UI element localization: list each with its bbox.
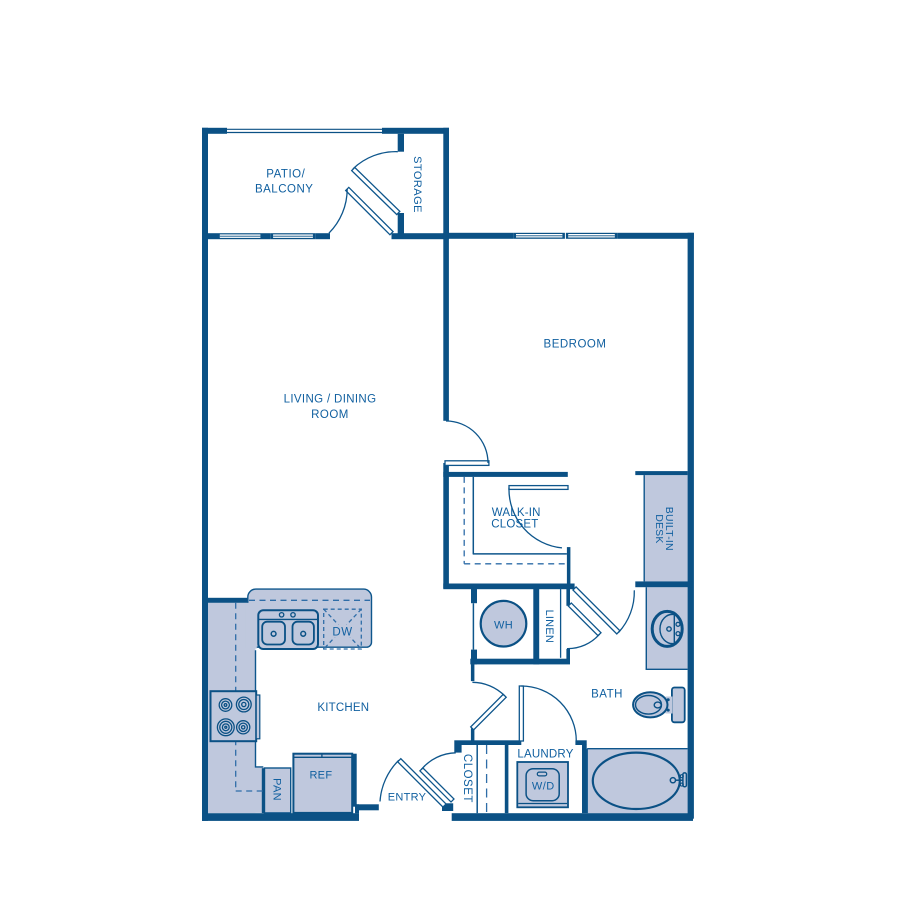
svg-text:STORAGE: STORAGE (411, 156, 423, 213)
svg-text:LAUNDRY: LAUNDRY (517, 749, 573, 761)
svg-text:ROOM: ROOM (311, 409, 349, 421)
svg-text:CLOSET: CLOSET (491, 519, 538, 531)
svg-text:REF: REF (309, 769, 332, 781)
svg-text:DESK: DESK (653, 514, 665, 543)
svg-text:KITCHEN: KITCHEN (317, 702, 369, 714)
svg-text:BALCONY: BALCONY (255, 184, 313, 196)
svg-text:BEDROOM: BEDROOM (544, 338, 607, 350)
svg-text:PAN: PAN (270, 778, 282, 801)
svg-text:LIVING / DINING: LIVING / DINING (284, 394, 377, 406)
svg-text:CLOSET: CLOSET (461, 754, 473, 803)
svg-text:DW: DW (332, 626, 352, 638)
svg-text:BATH: BATH (591, 689, 623, 701)
svg-text:WALK-IN: WALK-IN (492, 507, 541, 519)
svg-text:ENTRY: ENTRY (388, 792, 427, 804)
svg-text:W/D: W/D (532, 781, 555, 793)
svg-text:WH: WH (494, 619, 513, 631)
svg-text:PATIO/: PATIO/ (266, 168, 305, 180)
svg-text:LINEN: LINEN (543, 610, 555, 643)
